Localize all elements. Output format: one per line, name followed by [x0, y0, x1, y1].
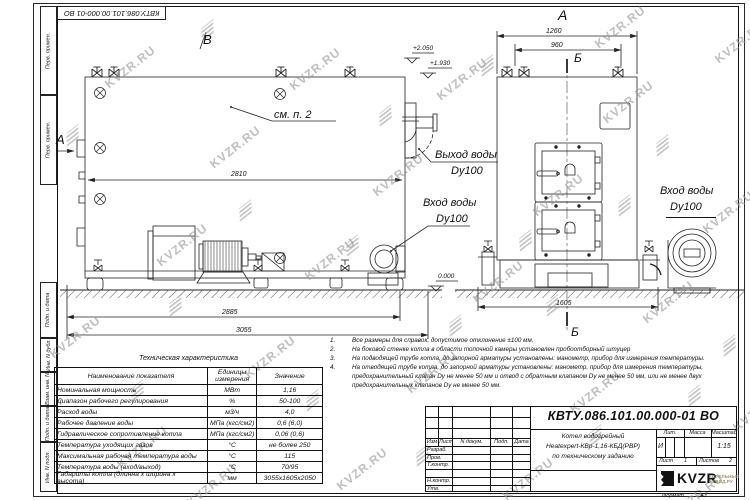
- outlet-label: Выход воды: [435, 150, 497, 161]
- margin-box-1: Перв. примен.: [40, 95, 57, 185]
- note-text: Все размеры для справок, допустимое откл…: [352, 336, 736, 345]
- tech-table-cell: °С: [207, 451, 257, 461]
- elev-high: +2.050: [413, 46, 433, 53]
- title-block-line: [490, 406, 491, 492]
- note-number: 1.: [330, 336, 352, 345]
- title-block-line: [656, 465, 737, 466]
- title-block-line: [696, 457, 697, 465]
- dim-1605: 1605: [556, 300, 572, 307]
- kvzr-logo-subtext: КОТЕЛЬНЫЙ ЗАВОД.РУ: [709, 474, 739, 484]
- note-text: На подводящей трубе котла, до запорной а…: [352, 354, 736, 363]
- title-block-line: [425, 469, 530, 470]
- dim-960: 960: [551, 42, 563, 49]
- tech-table-cell: Номинальная мощность: [55, 385, 207, 395]
- dim-3055: 3055: [236, 327, 252, 334]
- margin-box-label: Подп. и дата: [46, 293, 52, 327]
- tb-sign-row-label: Т.контр.: [427, 462, 449, 468]
- title-block-line: [512, 406, 513, 492]
- inlet-front-dn-label: Dy100: [670, 202, 702, 213]
- tech-table-row: Рабочее давление водыМПа (кгс/см2)0,6 (6…: [55, 417, 322, 428]
- drawing-sheet: КВТУ.086.101.00.000-01 ВО Перв. примен.П…: [0, 0, 750, 500]
- note-item: 1.Все размеры для справок, допустимое от…: [330, 336, 736, 345]
- title-block-line: [674, 437, 675, 457]
- notes-list: 1.Все размеры для справок, допустимое от…: [330, 336, 736, 390]
- tech-table-cell: 70/95: [256, 462, 322, 472]
- tech-table-cell: 0,6 (6,0): [256, 418, 322, 428]
- tb-sign-row-label: Н.контр.: [427, 478, 450, 484]
- tech-table-cell: Расход воды: [55, 407, 207, 417]
- note-number: 2.: [330, 345, 352, 354]
- tb-sign-row-label: Утв.: [427, 486, 440, 492]
- tech-table-cell: Максимальная рабочая температура воды: [55, 451, 207, 461]
- tb-sign-row-label: Пров.: [427, 455, 442, 461]
- title-block-line: [656, 437, 737, 438]
- kvzr-logo-icon: [661, 471, 674, 486]
- title-block-line: [656, 429, 657, 492]
- tb-header-col: Дата: [513, 439, 530, 445]
- tech-table-row: Габариты котла (длинна х ширина х высота…: [55, 472, 322, 483]
- outlet-dn-label: Dy100: [451, 166, 483, 177]
- tech-table-row: Гидравлическое сопротивление котлаМПа (к…: [55, 428, 322, 439]
- margin-box-label: Подп. и дата: [46, 407, 52, 441]
- sheet-value: 1: [684, 458, 687, 464]
- title-block-line: [530, 470, 656, 471]
- tech-table-cell: °С: [207, 440, 257, 450]
- front-view-label: А: [558, 8, 567, 22]
- tb-header-col: N докум.: [453, 439, 490, 445]
- tech-table-cell: мм: [207, 473, 257, 483]
- tech-table-cell: 50-100: [256, 396, 322, 406]
- tech-table-cell: МПа (кгс/см2): [207, 418, 257, 428]
- tech-table-cell: Диапазон рабочего регулирования: [55, 396, 207, 406]
- tech-table-header: Наименование показателя Единицы измерени…: [55, 368, 322, 384]
- doc-name-line2: Heatexpert-КВр-1,16-КБД(РВР): [530, 444, 656, 451]
- lit-value: И: [656, 443, 665, 450]
- elev-zero: 0.000: [438, 274, 454, 281]
- inlet-side-dn-label: Dy100: [436, 214, 468, 225]
- see-note-callout: см. п. 2: [274, 110, 311, 121]
- tech-table-title: Техническая характеристика: [54, 355, 323, 362]
- title-block-line: [665, 437, 666, 457]
- doc-name-line1: Котел водогрейный: [530, 434, 656, 441]
- dim-2885: 2885: [222, 309, 238, 316]
- note-text: На боковой стенке котла в области топочн…: [352, 345, 736, 354]
- margin-box-2: Подп. и дата: [40, 282, 57, 338]
- sheets-label: Листов: [699, 458, 719, 464]
- lit-label: Лит.: [656, 430, 684, 436]
- tech-table-cell: Гидравлическое сопротивление котла: [55, 429, 207, 439]
- mass-label: Масса: [684, 430, 711, 436]
- tech-table-row: Номинальная мощностьМВт1,16: [55, 384, 322, 395]
- note-item: 2.На боковой стенке котла в области топо…: [330, 345, 736, 354]
- doc-name-line3: по техническому заданию: [530, 454, 656, 461]
- tech-table-cell: 0,06 (0,6): [256, 429, 322, 439]
- sheet-label: Лист: [659, 458, 673, 464]
- note-number: 4.: [330, 363, 352, 390]
- tech-table-cell: °С: [207, 462, 257, 472]
- doc-designation: КВТУ.086.101.00.000-01 ВО: [530, 410, 737, 423]
- dim-1260: 1260: [546, 28, 562, 35]
- margin-box-label: Взам. инв. N: [46, 373, 52, 405]
- margin-box-label: Инв. N дубл.: [46, 339, 52, 371]
- elev-mid: +1.930: [430, 61, 450, 68]
- col-units-header: Единицы измерения: [207, 368, 257, 384]
- margin-box-label: Перв. примен.: [46, 122, 52, 159]
- tech-table-cell: не более 250: [256, 440, 322, 450]
- tb-sign-row-label: Разраб.: [427, 447, 447, 453]
- format-label: Формат: [662, 493, 684, 499]
- title-block-line: [425, 428, 530, 429]
- section-b-top-label: Б: [574, 52, 582, 64]
- tech-table-cell: МПа (кгс/см2): [207, 429, 257, 439]
- note-text: На отводящей трубе котла, до запорной ар…: [352, 363, 736, 390]
- tech-table-cell: м3/ч: [207, 407, 257, 417]
- inlet-front-underline: [666, 217, 716, 218]
- margin-box-0: Перв. примен.: [40, 6, 57, 95]
- tech-table-row: Расход водым3/ч4,0: [55, 406, 322, 417]
- col-name-header: Наименование показателя: [55, 368, 207, 384]
- inlet-front-label: Вход воды: [660, 186, 713, 197]
- note-item: 3.На подводящей трубе котла, до запорной…: [330, 354, 736, 363]
- tech-table-cell: 115: [256, 451, 322, 461]
- view-a-arrow-label: А: [56, 133, 65, 146]
- kvzr-logo-subtext-line2: ЗАВОД.РУ: [709, 479, 739, 484]
- margin-box-label: Инв. N подл.: [46, 451, 52, 483]
- tech-table-cell: Рабочее давление воды: [55, 418, 207, 428]
- tech-table-cell: МВт: [207, 385, 257, 395]
- tech-table-cell: Габариты котла (длинна х ширина х высота…: [55, 473, 207, 483]
- tech-table-cell: Температура уходящих газов: [55, 440, 207, 450]
- top-corner-stamp: КВТУ.086.101.00.000-01 ВО: [57, 6, 166, 20]
- tb-header-col: Изм: [426, 439, 438, 445]
- dim-2810: 2810: [231, 171, 247, 178]
- inlet-side-label: Вход воды: [423, 198, 476, 209]
- tech-table-row: Температура уходящих газов°Сне более 250: [55, 439, 322, 450]
- tb-header-col: Лист: [439, 439, 452, 445]
- note-number: 3.: [330, 354, 352, 363]
- scale-label: Масштаб: [711, 430, 737, 436]
- tb-header-col: Подп.: [491, 439, 512, 445]
- tech-table-row: Максимальная рабочая температура воды°С1…: [55, 450, 322, 461]
- view-b-label: В: [203, 33, 212, 46]
- margin-box-label: Перв. примен.: [46, 32, 52, 69]
- format-value: А3: [700, 493, 707, 499]
- tech-table-cell: 1,16: [256, 385, 322, 395]
- tech-table-cell: 4,0: [256, 407, 322, 417]
- tech-table-row: Диапазон рабочего регулирования%50-100: [55, 395, 322, 406]
- title-block-line: [425, 485, 530, 486]
- title-block-line: [452, 406, 453, 492]
- tech-table-cell: %: [207, 396, 257, 406]
- title-block-line: [425, 417, 530, 418]
- scale-value: 1:15: [711, 443, 737, 450]
- tech-table: Наименование показателя Единицы измерени…: [54, 367, 323, 484]
- tech-table-cell: 3055х1605х2050: [256, 473, 322, 483]
- col-value-header: Значение: [256, 368, 322, 384]
- top-corner-stamp-text: КВТУ.086.101.00.000-01 ВО: [64, 9, 160, 18]
- note-item: 4.На отводящей трубе котла, до запорной …: [330, 363, 736, 390]
- sheets-value: 2: [729, 458, 732, 464]
